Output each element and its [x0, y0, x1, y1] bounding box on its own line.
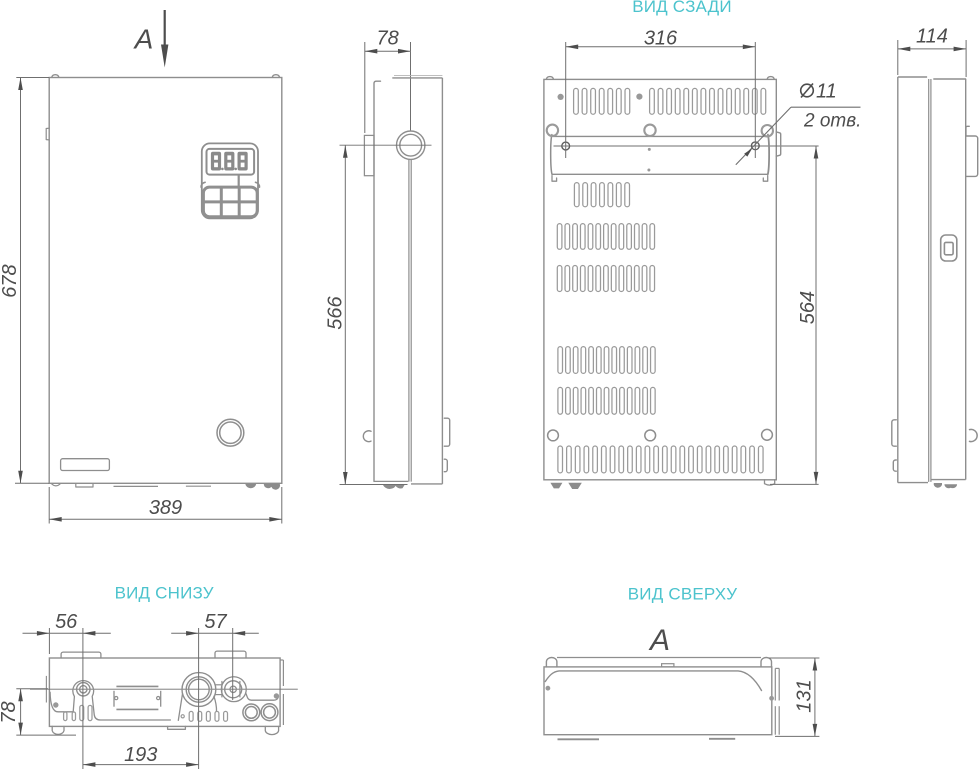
svg-text:ВИД СНИЗУ: ВИД СНИЗУ [115, 583, 214, 602]
svg-text:564: 564 [797, 291, 819, 324]
svg-text:678: 678 [0, 264, 21, 297]
svg-text:ВИД СВЕРХУ: ВИД СВЕРХУ [628, 584, 737, 603]
svg-text:114: 114 [916, 26, 948, 48]
svg-text:56: 56 [55, 611, 78, 633]
svg-text:78: 78 [0, 701, 20, 723]
svg-text:566: 566 [325, 295, 347, 329]
svg-text:2 отв.: 2 отв. [803, 110, 861, 131]
svg-text:131: 131 [794, 679, 816, 712]
svg-text:A: A [133, 24, 154, 55]
svg-text:389: 389 [149, 497, 182, 519]
svg-text:316: 316 [644, 27, 678, 49]
svg-text:193: 193 [124, 744, 157, 766]
svg-text:11: 11 [816, 80, 837, 102]
svg-text:ВИД СЗАДИ: ВИД СЗАДИ [632, 0, 732, 16]
svg-text:57: 57 [204, 611, 227, 633]
svg-text:78: 78 [377, 28, 399, 50]
svg-text:A: A [648, 624, 670, 657]
